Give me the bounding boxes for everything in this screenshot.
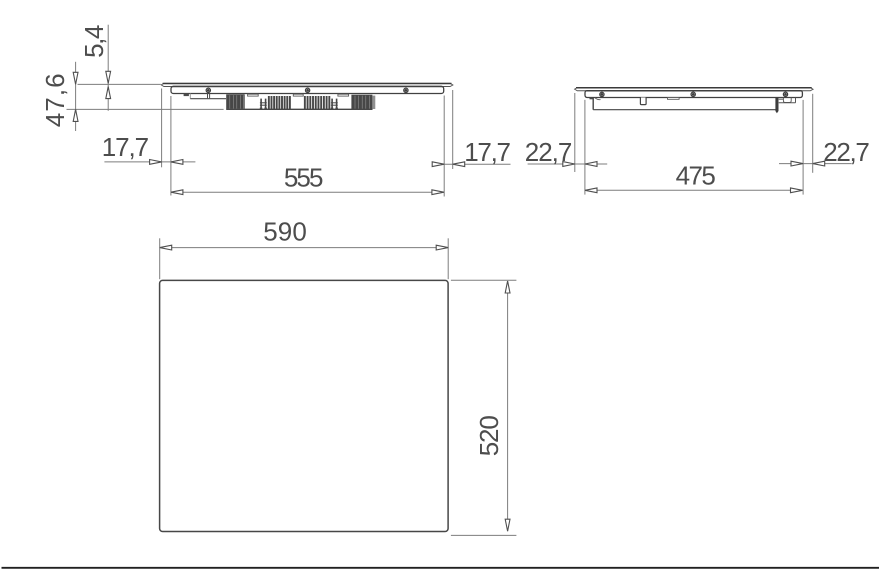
svg-text:22,7: 22,7 <box>525 137 572 167</box>
svg-text:47,6: 47,6 <box>40 72 70 127</box>
svg-text:590: 590 <box>263 216 307 246</box>
svg-text:5,4: 5,4 <box>79 25 109 58</box>
svg-text:475: 475 <box>676 161 716 191</box>
svg-text:555: 555 <box>284 163 323 193</box>
svg-text:520: 520 <box>474 416 504 457</box>
svg-text:17,7: 17,7 <box>102 132 149 162</box>
svg-text:22,7: 22,7 <box>823 137 869 167</box>
svg-text:17,7: 17,7 <box>464 137 510 167</box>
